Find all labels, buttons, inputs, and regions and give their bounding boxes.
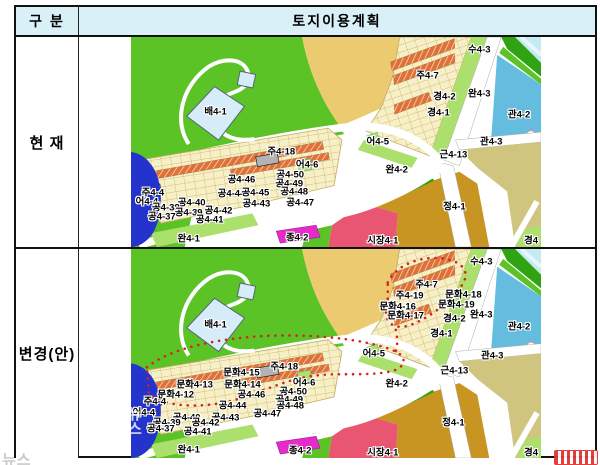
land-use-comparison-table: 구 분 토지이용계획 현 재	[14, 5, 597, 458]
zone-label: 시장4-1	[367, 448, 398, 458]
zone-label: 배4-1	[204, 108, 226, 118]
row-label-current: 현 재	[16, 37, 79, 247]
zone-label: 주4-19	[396, 292, 424, 302]
zone-label: 공4-44	[219, 401, 247, 411]
zone-label: 공4-41	[184, 428, 212, 438]
zone-label: 관4-3	[481, 352, 503, 362]
zone-label: 주4-4	[144, 397, 166, 407]
zone-label: 종4-2	[289, 446, 311, 456]
zone-label: 근4-13	[441, 366, 469, 376]
zone-label: 관4-3	[480, 137, 502, 147]
zone-label: 어4-5	[363, 350, 385, 360]
zone-label: 경4-1	[427, 109, 449, 119]
table-row-proposed: 변경(안)	[16, 247, 595, 458]
header-cell-plan: 토지이용계획	[79, 7, 595, 35]
zone-label: 정4-1	[442, 419, 464, 429]
zone-label: 문화4-15	[223, 368, 260, 378]
zone-label: 완4-2	[385, 379, 407, 389]
zone-label: 어4-5	[367, 137, 389, 147]
zone-label: 시장4-1	[367, 236, 398, 246]
zone-label: 종4-2	[286, 233, 308, 243]
zone-label: 경4-1	[430, 329, 452, 339]
zone-label: 정4-1	[443, 203, 465, 213]
zone-label: 공4-45	[242, 188, 270, 198]
zone-label: 공4-46	[238, 390, 266, 400]
zone-label: 수4-3	[470, 257, 492, 267]
zone-label: 경4	[524, 236, 538, 246]
map-proposed: 배4-1수4-3주4-7주4-19문화4-18문화4-16문화4-19문화4-1…	[131, 249, 541, 458]
zone-label: 경4-2	[433, 93, 455, 103]
zone-label: 공4-37	[147, 425, 175, 435]
zone-label: 경4-2	[443, 314, 465, 324]
zone-label: 경4	[524, 448, 538, 458]
zone-label: 공4-37	[148, 213, 176, 223]
zone-label: 주4-7	[416, 71, 438, 81]
watermark-on-map: 뉴스	[131, 407, 144, 437]
zone-label: 수4-3	[468, 45, 490, 55]
row-label-proposed: 변경(안)	[16, 249, 79, 458]
map-current: 배4-1수4-3주4-7경4-2완4-3경4-1관4-2어4-5관4-3근4-1…	[131, 37, 541, 247]
zone-label: 완4-1	[177, 234, 199, 244]
zone-label: 근4-13	[440, 150, 468, 160]
zone-label: 주4-7	[415, 281, 437, 291]
zone-label: 공4-47	[253, 409, 281, 419]
zone-label: 관4-2	[508, 111, 530, 121]
zone-label: 완4-2	[385, 165, 407, 175]
page: 구 분 토지이용계획 현 재	[0, 0, 600, 465]
zone-label: 공4-47	[286, 199, 314, 209]
zone-label: 공4-43	[242, 200, 270, 210]
watermark-logo-fragment	[554, 450, 598, 465]
zone-label: 완4-3	[468, 90, 490, 100]
zone-label: 공4-46	[228, 175, 256, 185]
zone-label: 주4-18	[270, 363, 298, 373]
zone-label: 주4-18	[267, 147, 295, 157]
zone-label: 관4-2	[508, 322, 530, 332]
zone-label: 공4-48	[280, 187, 308, 197]
zone-label: 완4-1	[177, 445, 199, 455]
table-row-current: 현 재	[16, 37, 595, 247]
zone-label: 배4-1	[204, 320, 226, 330]
zone-label: 문화4-17	[387, 311, 424, 321]
zone-label: 완4-3	[470, 310, 492, 320]
header-cell-category: 구 분	[16, 7, 79, 35]
watermark-bottom-left: 뉴스	[2, 449, 32, 465]
table-header-row: 구 분 토지이용계획	[16, 7, 595, 37]
zone-label: 공4-41	[196, 216, 224, 226]
